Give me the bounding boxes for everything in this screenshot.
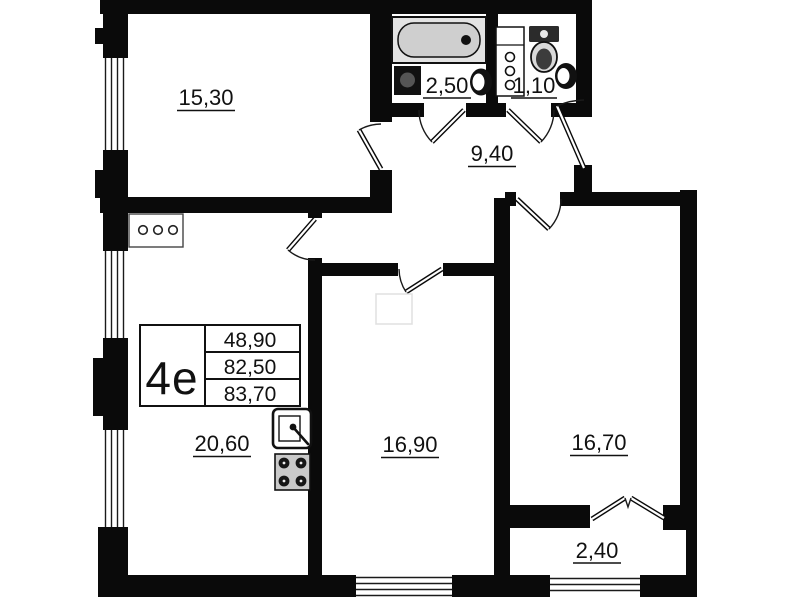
door-kitchen: [288, 219, 315, 260]
window-middle-room: [356, 578, 452, 596]
stove-icon: [275, 454, 310, 490]
room-area-top-left: 15,30: [178, 85, 233, 110]
sink-icon: [470, 69, 492, 96]
toilet-icon: [529, 26, 559, 72]
room-area-balcony: 2,40: [576, 538, 619, 563]
window-balcony: [550, 579, 640, 591]
vent-holes-icon: [129, 214, 183, 247]
unit-type-label: 4e: [145, 352, 198, 404]
kitchen-sink-icon: [273, 409, 311, 448]
room-area-kitchen-living: 20,60: [194, 431, 249, 456]
unit-area-total: 83,70: [224, 383, 277, 406]
unit-area-living: 48,90: [224, 329, 277, 352]
furniture-outline: [376, 294, 412, 324]
sink-icon-wc: [555, 63, 577, 89]
door-top-left-room: [359, 124, 381, 169]
room-area-middle-room: 16,90: [382, 432, 437, 457]
door-middle-room: [399, 269, 442, 292]
floor-plan-drawing: 15,30 2,50 1,10 9,40 20,60 16,90 16,70 2…: [0, 0, 799, 600]
bathtub-icon: [392, 17, 486, 63]
door-wc: [508, 110, 554, 142]
door-right-room: [517, 199, 561, 229]
room-area-wc: 1,10: [513, 73, 556, 98]
balcony-french-door: [592, 498, 664, 519]
window-kitchen-upper: [106, 251, 124, 338]
room-area-bathroom: 2,50: [426, 73, 469, 98]
window-top-left-room: [106, 58, 124, 150]
door-bathroom: [419, 110, 464, 142]
room-labels: 15,30 2,50 1,10 9,40 20,60 16,90 16,70 2…: [177, 73, 628, 563]
floor-plan: 15,30 2,50 1,10 9,40 20,60 16,90 16,70 2…: [0, 0, 799, 600]
window-kitchen-lower: [106, 430, 124, 527]
washbasin-icon: [394, 66, 421, 95]
unit-info-table: 4e 48,90 82,50 83,70: [140, 325, 300, 406]
unit-area-main: 82,50: [224, 356, 277, 379]
room-area-hallway: 9,40: [471, 141, 514, 166]
room-area-right-room: 16,70: [571, 430, 626, 455]
